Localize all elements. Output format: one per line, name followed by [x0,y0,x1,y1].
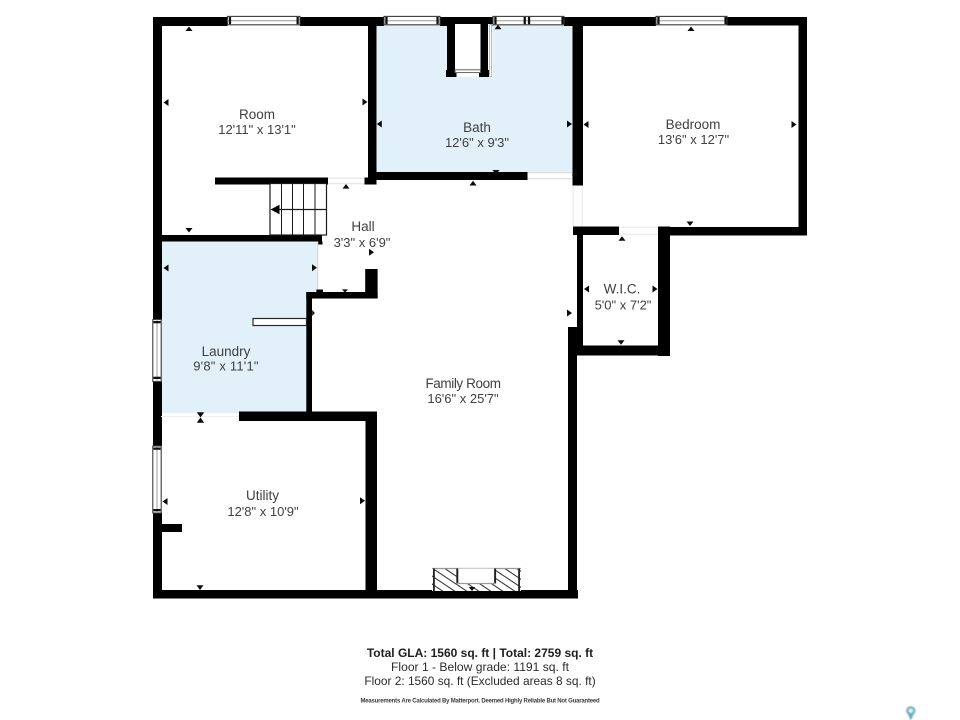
svg-text:16'6" x 25'7": 16'6" x 25'7" [427,391,499,406]
svg-text:W.I.C.: W.I.C. [604,281,641,296]
svg-text:9'8" x 11'1": 9'8" x 11'1" [193,359,259,374]
svg-text:12'8" x 10'9": 12'8" x 10'9" [227,504,299,519]
svg-text:Utility: Utility [246,488,279,503]
svg-text:Room: Room [239,107,275,122]
svg-text:Hall: Hall [351,219,374,234]
svg-text:Floor 2: 1560 sq. ft (Excluded: Floor 2: 1560 sq. ft (Excluded areas 8 s… [364,674,595,688]
svg-text:Bath: Bath [463,120,491,135]
svg-text:3'3" x 6'9": 3'3" x 6'9" [334,235,391,250]
svg-text:12'11" x 13'1": 12'11" x 13'1" [218,122,296,137]
svg-text:Floor 1 - Below grade: 1191 sq: Floor 1 - Below grade: 1191 sq. ft [391,660,570,674]
svg-text:Bedroom: Bedroom [666,117,721,132]
svg-text:Total GLA: 1560 sq. ft | Total: Total GLA: 1560 sq. ft | Total: 2759 sq.… [367,646,593,660]
svg-text:Measurements Are Calculated By: Measurements Are Calculated By Matterpor… [360,698,600,704]
svg-text:12'6" x 9'3": 12'6" x 9'3" [445,135,509,150]
svg-text:Laundry: Laundry [202,344,251,359]
svg-text:13'6" x 12'7": 13'6" x 12'7" [658,132,730,147]
svg-text:5'0" x 7'2": 5'0" x 7'2" [595,297,652,312]
svg-text:Family Room: Family Room [425,376,500,391]
